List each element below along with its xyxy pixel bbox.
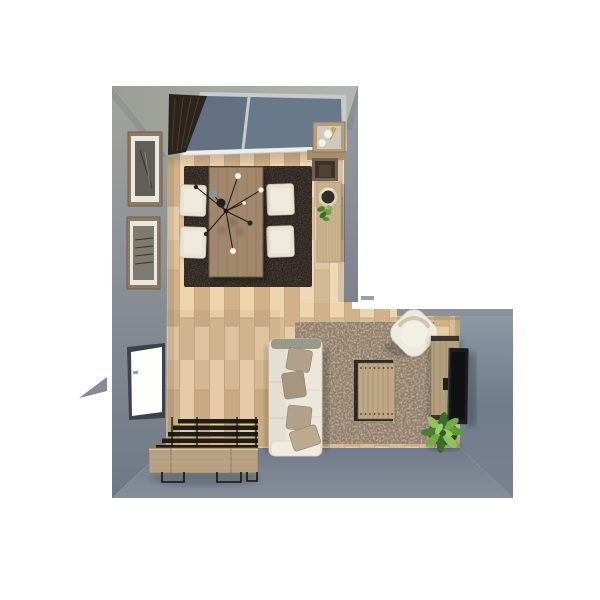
chandelier-bulb xyxy=(242,201,246,205)
dining-chair[interactable] xyxy=(179,185,208,219)
chair-cushion xyxy=(271,230,291,254)
lamp-globe xyxy=(318,139,326,147)
sofa[interactable] xyxy=(264,339,329,456)
coffee-table-top xyxy=(358,363,395,419)
chandelier-ball xyxy=(194,185,198,189)
chair-cushion xyxy=(184,189,203,213)
tv-screen xyxy=(450,352,465,420)
wall-picture-lower[interactable] xyxy=(127,217,160,289)
dining-chair[interactable] xyxy=(179,227,208,261)
left-wall-floor-shadow xyxy=(168,157,174,448)
coffee-table[interactable] xyxy=(354,360,395,421)
chandelier-bulb xyxy=(235,173,241,179)
chair-cushion xyxy=(184,231,203,255)
cabinet-shadow xyxy=(341,184,345,262)
wall-picture-upper[interactable] xyxy=(128,132,162,206)
bench-front-panel xyxy=(149,448,258,473)
floor-plan-render xyxy=(0,0,600,600)
side-window-latch xyxy=(133,371,138,374)
chandelier-bulb xyxy=(230,248,236,254)
chair-cushion xyxy=(271,188,291,212)
lamp-brass-joint xyxy=(331,127,335,131)
chandelier-ball xyxy=(204,232,208,236)
shelf-mid-object xyxy=(319,165,331,177)
sofa-pillow xyxy=(285,347,312,373)
wall-end-cap xyxy=(361,296,374,300)
tv-stand-top-cap xyxy=(431,336,459,341)
dining-table[interactable] xyxy=(209,167,267,281)
chandelier-hub xyxy=(224,209,229,214)
dining-chair[interactable] xyxy=(266,225,296,259)
side-window-glass xyxy=(131,347,162,416)
chandelier-ball-large xyxy=(217,199,226,208)
chandelier-ball-gray xyxy=(209,190,217,198)
armchair-seat xyxy=(401,321,427,347)
picture-art xyxy=(133,226,154,280)
side-window xyxy=(127,343,165,420)
console-cabinet[interactable] xyxy=(316,182,345,262)
chandelier-ball xyxy=(247,220,252,225)
sofa-pillow xyxy=(281,371,306,400)
dining-chair[interactable] xyxy=(266,183,296,217)
sofa-top-arm xyxy=(271,339,321,349)
dining-area xyxy=(179,166,312,287)
chandelier-bulb xyxy=(258,187,263,192)
lamp-globe xyxy=(324,130,332,138)
floor-plan-canvas xyxy=(0,0,600,600)
sofa-back xyxy=(269,341,286,454)
